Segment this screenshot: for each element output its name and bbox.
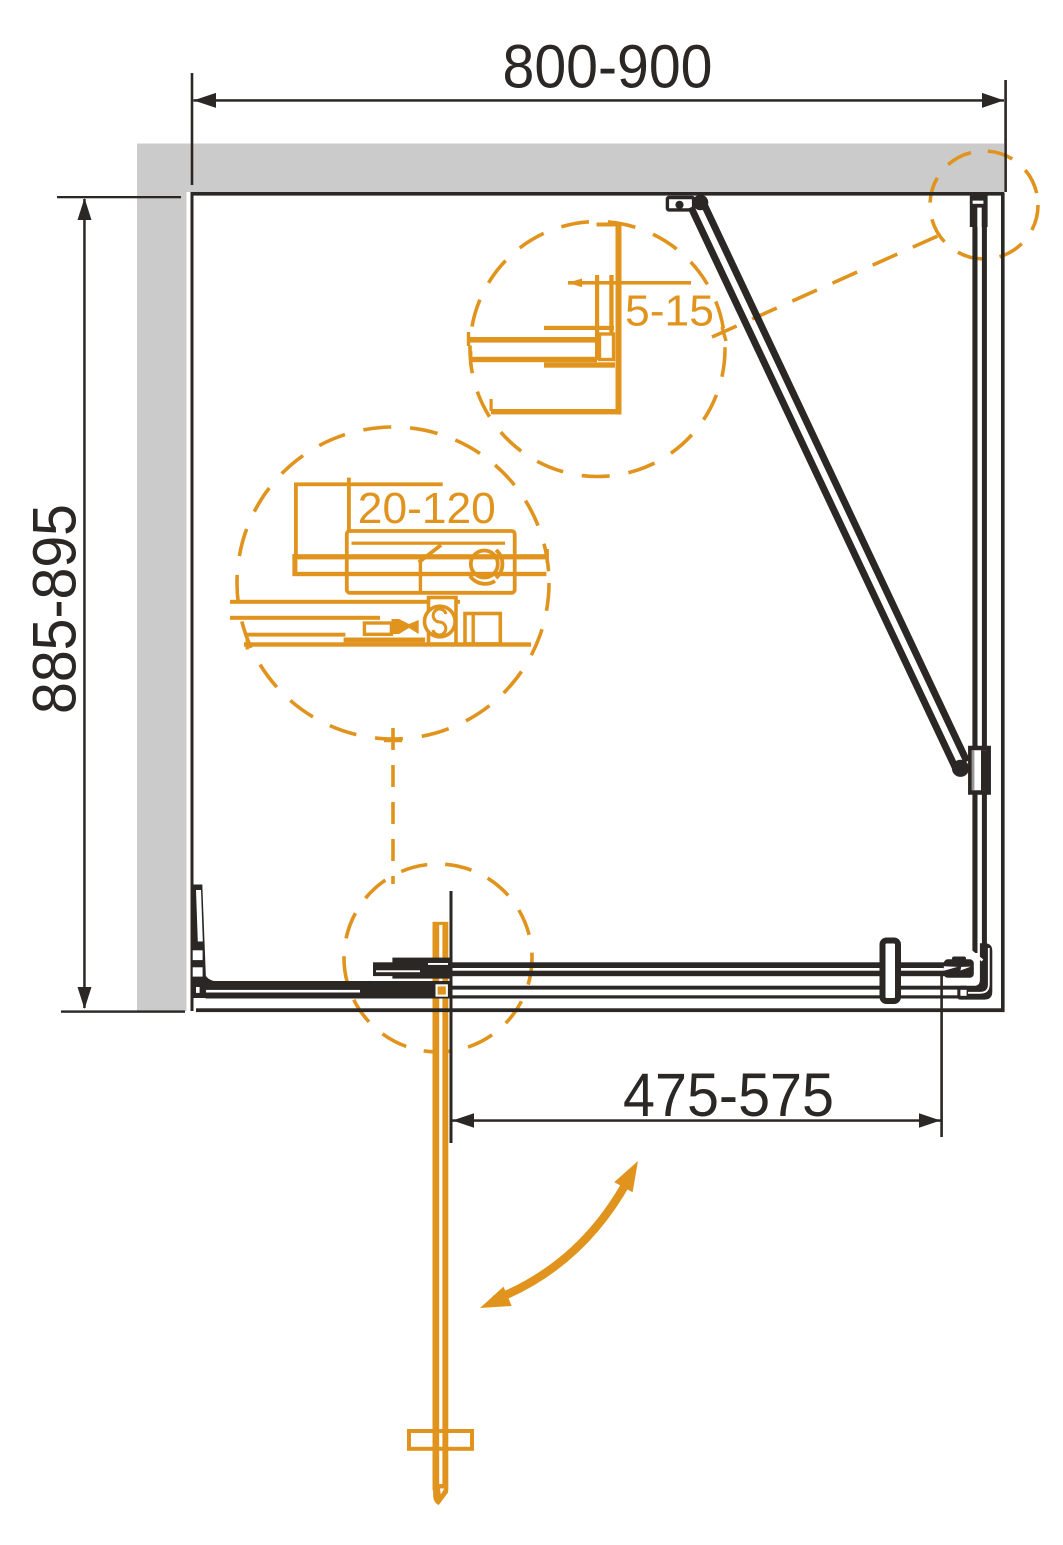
svg-text:475-575: 475-575 bbox=[623, 1061, 834, 1129]
svg-text:885-895: 885-895 bbox=[21, 504, 89, 714]
svg-text:800-900: 800-900 bbox=[503, 33, 713, 101]
svg-text:5-15: 5-15 bbox=[625, 287, 714, 336]
svg-text:20-120: 20-120 bbox=[358, 484, 496, 533]
